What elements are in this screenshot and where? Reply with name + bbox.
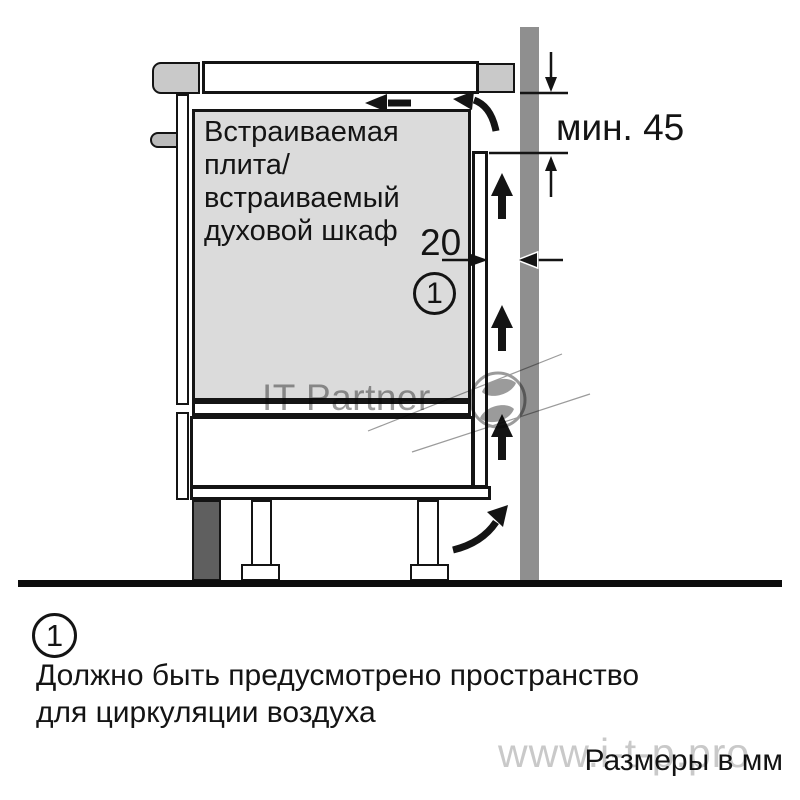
plinth	[192, 500, 221, 581]
installation-diagram: Встраиваемая плита/ встраиваемый духовой…	[0, 0, 800, 800]
worktop-hob-body	[202, 61, 479, 94]
callout-number: 1	[426, 277, 443, 311]
footnote-marker-number: 1	[46, 618, 63, 654]
dim-20-label: 20	[420, 222, 461, 264]
footnote-marker-circle: 1	[32, 613, 77, 658]
worktop-right-edge	[477, 63, 515, 93]
rear-vent-panel	[472, 151, 488, 488]
drawer-box	[190, 416, 474, 488]
watermark-partner-text: IT Partner	[262, 377, 431, 419]
leg-front-foot	[241, 564, 280, 581]
watermark-site-text: www.i-t-p.pro	[498, 730, 750, 777]
dim-min45-label: мин. 45	[556, 107, 684, 149]
drawer-front-panel	[176, 412, 189, 500]
appliance-label: Встраиваемая плита/ встраиваемый духовой…	[204, 116, 444, 248]
leg-rear-foot	[410, 564, 449, 581]
callout-circle: 1	[413, 272, 456, 315]
floor-line	[18, 580, 782, 587]
wall	[520, 27, 539, 582]
leg-rear-shaft	[417, 500, 439, 568]
bottom-shelf	[190, 486, 491, 500]
oven-door-handle	[150, 132, 178, 148]
footnote-text: Должно быть предусмотрено пространство д…	[36, 657, 796, 731]
leg-front-shaft	[251, 500, 272, 568]
airflow-curve-bottom-arrow	[453, 505, 508, 550]
worktop-left-edge	[152, 62, 200, 94]
airflow-up-arrows	[491, 173, 513, 460]
